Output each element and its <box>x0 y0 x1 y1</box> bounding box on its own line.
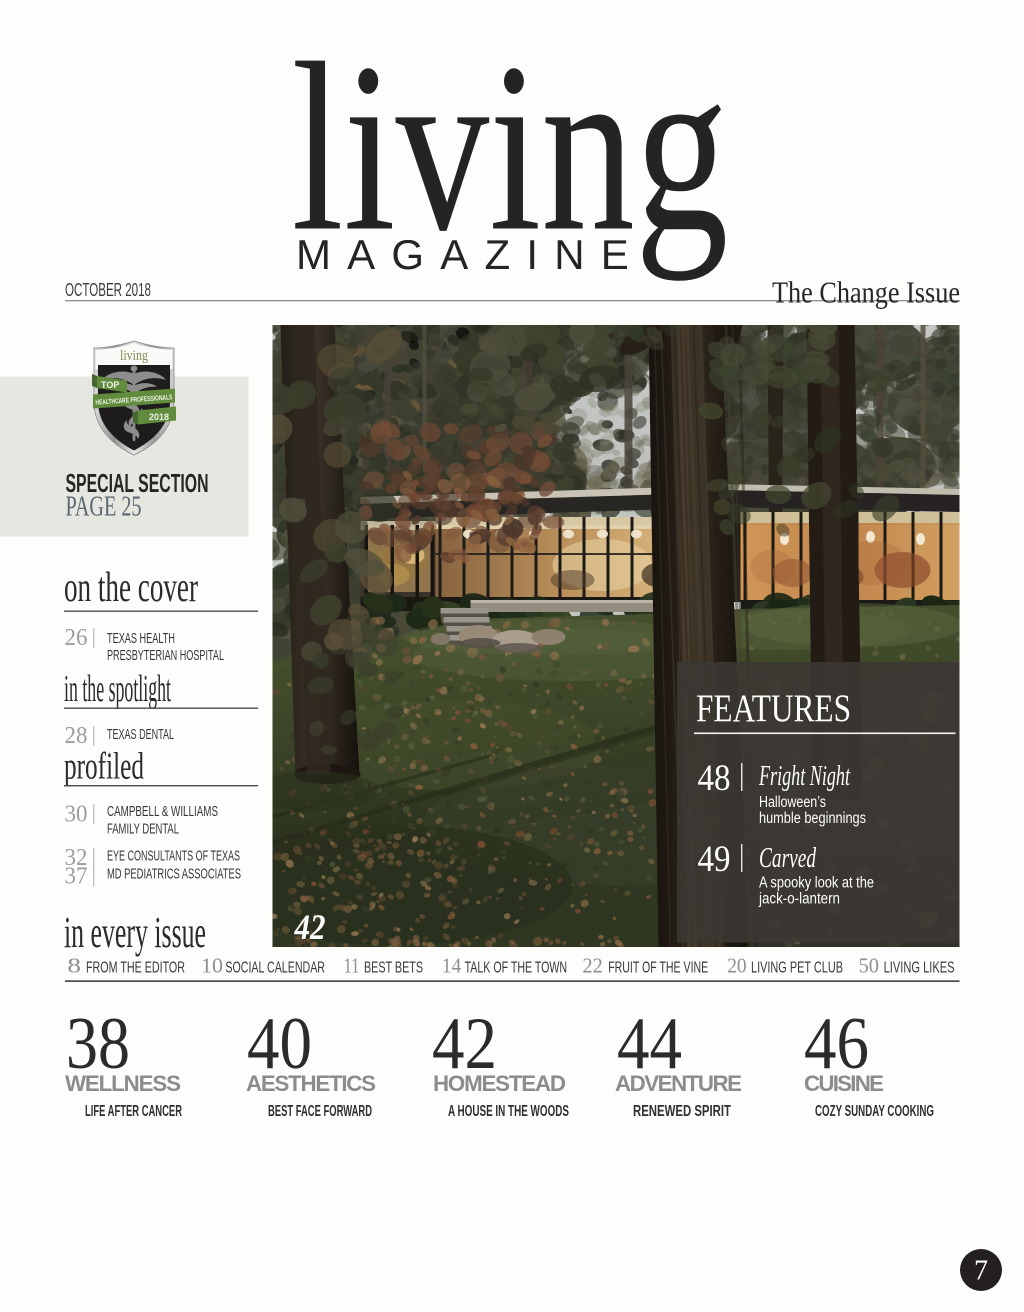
svg-text:on the cover: on the cover <box>64 565 198 611</box>
svg-text:BEST BETS: BEST BETS <box>364 960 423 977</box>
svg-text:EYE CONSULTANTS OF TEXAS: EYE CONSULTANTS OF TEXAS <box>107 849 240 865</box>
svg-text:FEATURES: FEATURES <box>696 686 851 730</box>
svg-text:jack-o-lantern: jack-o-lantern <box>758 891 840 908</box>
svg-text:14: 14 <box>442 954 462 978</box>
svg-text:Halloween’s: Halloween’s <box>759 794 826 811</box>
svg-text:HOMESTEAD: HOMESTEAD <box>433 1071 566 1096</box>
svg-text:2018: 2018 <box>149 412 169 422</box>
svg-text:PRESBYTERIAN HOSPITAL: PRESBYTERIAN HOSPITAL <box>107 648 224 664</box>
svg-text:49: 49 <box>698 838 731 879</box>
svg-text:Carved: Carved <box>759 843 817 874</box>
svg-text:PAGE 25: PAGE 25 <box>66 492 142 523</box>
svg-text:FAMILY DENTAL: FAMILY DENTAL <box>107 822 179 838</box>
svg-text:TOP: TOP <box>101 380 119 390</box>
svg-text:22: 22 <box>582 954 603 978</box>
svg-text:8: 8 <box>67 954 81 978</box>
svg-text:11: 11 <box>344 954 360 978</box>
svg-text:LIVING LIKES: LIVING LIKES <box>884 960 955 977</box>
svg-text:CAMPBELL & WILLIAMS: CAMPBELL & WILLIAMS <box>107 804 218 820</box>
svg-text:WELLNESS: WELLNESS <box>65 1071 181 1096</box>
svg-text:50: 50 <box>859 954 879 978</box>
svg-text:The Change Issue: The Change Issue <box>772 275 960 310</box>
svg-text:A spooky look at the: A spooky look at the <box>759 875 874 892</box>
svg-text:SOCIAL CALENDAR: SOCIAL CALENDAR <box>225 960 325 977</box>
svg-text:TEXAS HEALTH: TEXAS HEALTH <box>107 631 175 647</box>
svg-text:AESTHETICS: AESTHETICS <box>246 1071 376 1096</box>
svg-text:37: 37 <box>65 863 88 889</box>
svg-text:RENEWED SPIRIT: RENEWED SPIRIT <box>633 1103 731 1120</box>
svg-text:7: 7 <box>974 1256 988 1287</box>
svg-text:in every issue: in every issue <box>64 908 206 957</box>
svg-text:COZY SUNDAY COOKING: COZY SUNDAY COOKING <box>815 1103 934 1120</box>
svg-text:MAGAZINE: MAGAZINE <box>296 231 645 278</box>
svg-text:CUISINE: CUISINE <box>804 1071 884 1096</box>
svg-text:A HOUSE IN THE WOODS: A HOUSE IN THE WOODS <box>448 1103 569 1120</box>
svg-text:in the spotlight: in the spotlight <box>64 668 171 710</box>
svg-text:BEST FACE FORWARD: BEST FACE FORWARD <box>268 1103 372 1120</box>
svg-text:26: 26 <box>65 625 88 651</box>
svg-text:Fright Night: Fright Night <box>758 761 850 792</box>
svg-text:LIFE AFTER CANCER: LIFE AFTER CANCER <box>85 1103 182 1120</box>
svg-text:humble beginnings: humble beginnings <box>759 810 866 827</box>
svg-text:42: 42 <box>294 907 326 947</box>
svg-text:TALK OF THE TOWN: TALK OF THE TOWN <box>465 960 567 977</box>
svg-text:48: 48 <box>698 757 731 798</box>
svg-text:TEXAS DENTAL: TEXAS DENTAL <box>107 727 174 743</box>
svg-text:ADVENTURE: ADVENTURE <box>615 1071 742 1096</box>
svg-text:LIVING PET CLUB: LIVING PET CLUB <box>751 960 843 977</box>
svg-text:MD PEDIATRICS ASSOCIATES: MD PEDIATRICS ASSOCIATES <box>107 867 241 883</box>
svg-text:30: 30 <box>65 802 88 828</box>
svg-text:FRUIT OF THE VINE: FRUIT OF THE VINE <box>608 960 708 977</box>
svg-text:FROM THE EDITOR: FROM THE EDITOR <box>86 960 185 977</box>
svg-text:living: living <box>120 348 148 364</box>
svg-text:10: 10 <box>201 954 223 978</box>
svg-text:profiled: profiled <box>64 746 144 788</box>
svg-text:OCTOBER 2018: OCTOBER 2018 <box>65 280 151 300</box>
svg-text:20: 20 <box>727 954 746 978</box>
